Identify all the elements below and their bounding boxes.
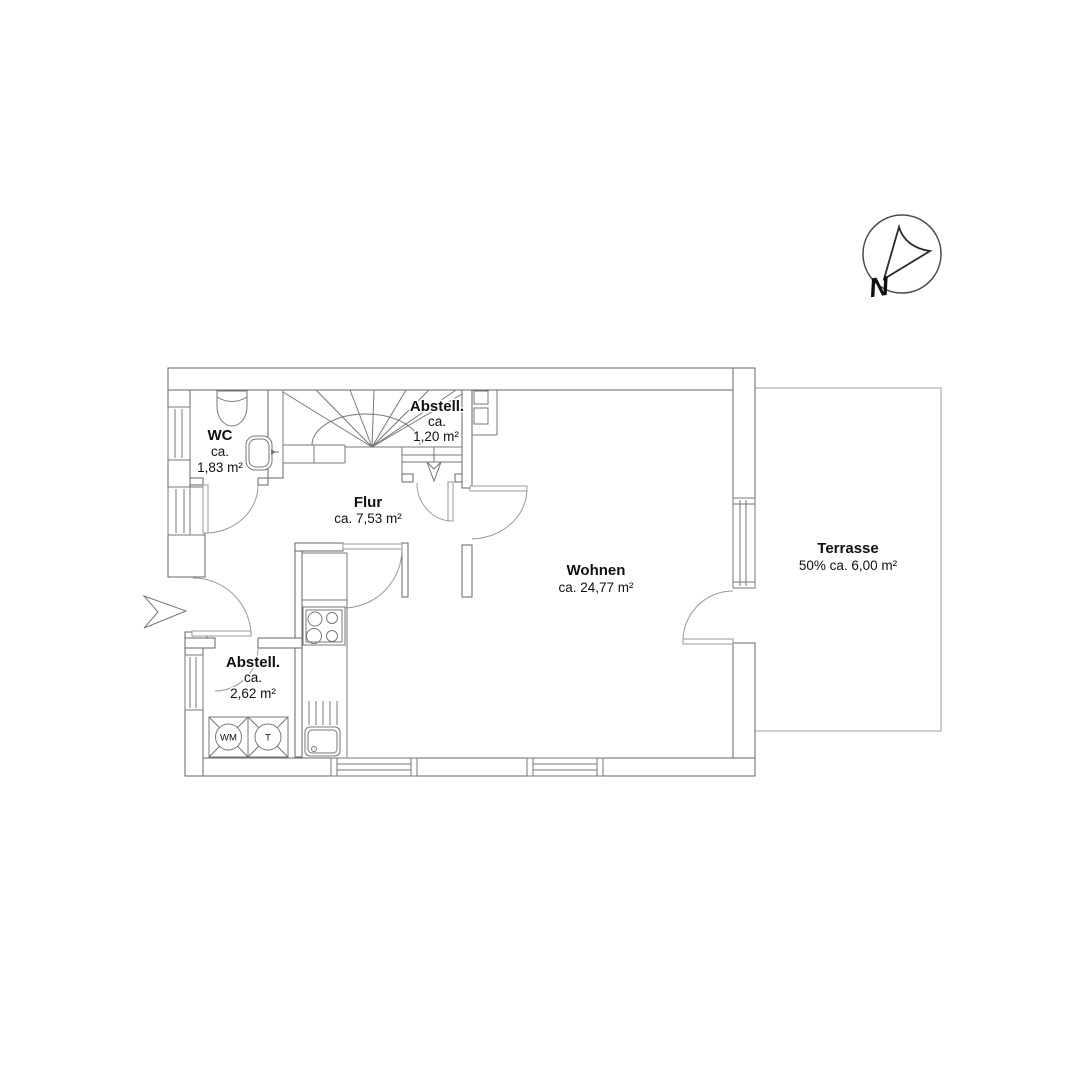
- door-terrace: [683, 591, 733, 644]
- room-name-abstell-upper: Abstell.: [410, 398, 464, 415]
- door-wohnen: [470, 486, 527, 539]
- window-abstell-left: [185, 655, 203, 710]
- floorplan-page: WM T N WC ca. 1,83 m² Abstell. ca. 1,20 …: [0, 0, 1080, 1080]
- room-ca-wc: ca.: [211, 444, 229, 459]
- door-kitchen: [343, 544, 402, 608]
- floorplan-drawing: WM T N WC ca. 1,83 m² Abstell. ca. 1,20 …: [0, 0, 1080, 1080]
- sink-icon: [305, 727, 340, 756]
- window-wc-left: [168, 407, 190, 460]
- window-terrace-right: [733, 498, 755, 588]
- north-compass: N: [863, 215, 941, 303]
- room-area-abstell-upper: 1,20 m²: [413, 429, 459, 444]
- window-bottom-1: [331, 758, 417, 776]
- door-entrance: [192, 578, 251, 636]
- label-flur: Flur ca. 7,53 m²: [334, 494, 402, 526]
- drainer-icon: [309, 701, 337, 725]
- door-wc: [203, 485, 258, 533]
- room-name-wc: WC: [208, 427, 233, 444]
- room-area-wohnen: ca. 24,77 m²: [558, 580, 634, 595]
- entrance-arrow-icon: [144, 596, 186, 628]
- door-understair: [417, 482, 453, 521]
- kitchen: [302, 553, 347, 757]
- room-ca-abstell-upper: ca.: [428, 414, 446, 429]
- label-abstell-lower: Abstell. ca. 2,62 m²: [226, 654, 280, 701]
- label-abstell-upper: Abstell. ca. 1,20 m²: [410, 398, 464, 444]
- toilet-icon: [217, 391, 247, 426]
- north-needle-icon: [884, 227, 930, 279]
- laundry-appliances: WM T: [209, 717, 288, 757]
- room-name-wohnen: Wohnen: [567, 562, 626, 579]
- dryer-label: T: [265, 733, 271, 744]
- window-flur-left: [168, 487, 205, 535]
- room-name-terrasse: Terrasse: [817, 540, 878, 557]
- room-area-flur: ca. 7,53 m²: [334, 511, 402, 526]
- room-name-abstell-lower: Abstell.: [226, 654, 280, 671]
- room-ca-abstell-lower: ca.: [244, 670, 262, 685]
- window-bottom-2: [527, 758, 603, 776]
- label-terrasse: Terrasse 50% ca. 6,00 m²: [799, 540, 898, 573]
- room-area-terrasse: 50% ca. 6,00 m²: [799, 558, 898, 573]
- kitchen-counter: [302, 553, 347, 757]
- duct-shafts: [474, 391, 488, 424]
- label-wc: WC ca. 1,83 m²: [197, 427, 243, 475]
- stair-direction-arrow-icon: [427, 447, 441, 481]
- washing-machine-label: WM: [220, 733, 237, 744]
- label-wohnen: Wohnen ca. 24,77 m²: [558, 562, 634, 595]
- room-name-flur: Flur: [354, 494, 382, 511]
- room-area-wc: 1,83 m²: [197, 460, 243, 475]
- stove-icon: [303, 607, 345, 645]
- room-area-abstell-lower: 2,62 m²: [230, 686, 276, 701]
